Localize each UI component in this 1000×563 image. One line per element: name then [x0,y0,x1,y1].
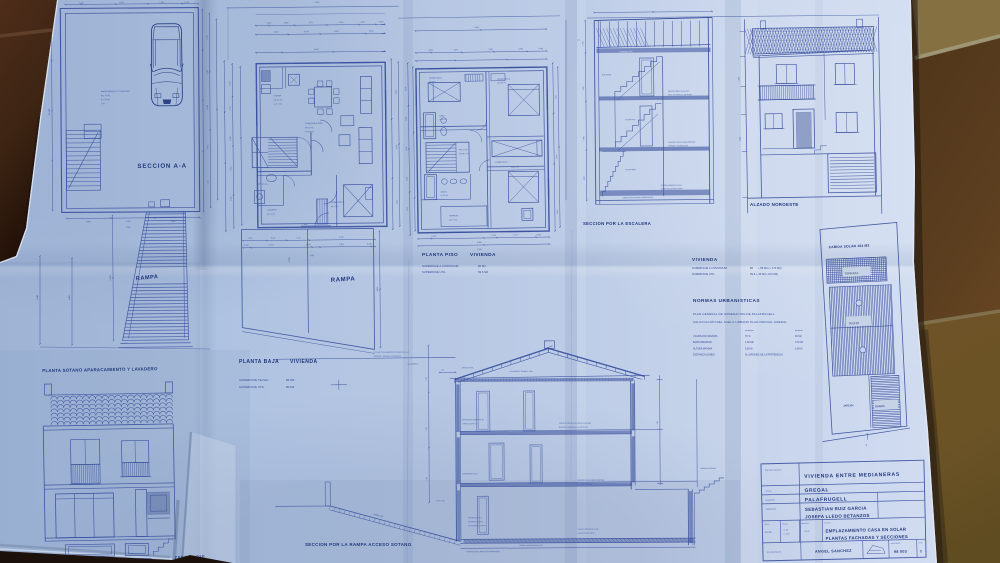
svg-text:sup 12 m2: sup 12 m2 [511,166,519,168]
svg-text:80 M2: 80 M2 [286,385,295,389]
svg-text:2.139: 2.139 [405,87,407,91]
svg-text:SUPERFICIE UTIL: SUPERFICIE UTIL [239,385,265,389]
svg-text:A.S.G.: A.S.G. [804,530,810,533]
svg-text:sup 8.2 m2: sup 8.2 m2 [274,99,283,101]
svg-text:0.449: 0.449 [379,21,384,23]
svg-text:2.663: 2.663 [556,155,558,159]
svg-text:12.428: 12.428 [49,108,51,115]
svg-text:1.714: 1.714 [207,180,209,185]
svg-text:0.927: 0.927 [271,237,276,239]
svg-text:86 M2: 86 M2 [286,378,295,382]
svg-text:PESO 320 KG/M2 SC 200 KG/M2: PESO 320 KG/M2 SC 200 KG/M2 [668,94,692,96]
svg-text:1.648: 1.648 [406,147,408,151]
svg-text:7.005: 7.005 [302,224,307,226]
svg-text:2.283: 2.283 [339,22,344,24]
svg-text:0.962: 0.962 [429,50,434,52]
svg-text:PAS 12 m2: PAS 12 m2 [459,148,468,151]
svg-text:+ 86 M2 (+ 172 M2): + 86 M2 (+ 172 M2) [758,266,782,270]
svg-text:sup 7.5 m2: sup 7.5 m2 [449,219,457,221]
svg-text:VIVIENDA: VIVIENDA [290,359,318,365]
svg-text:7.005: 7.005 [126,227,131,229]
svg-text:0.355: 0.355 [306,244,311,246]
svg-text:TERRAZA: TERRAZA [449,214,459,217]
svg-text:2.70: 2.70 [426,377,428,380]
svg-text:su 7.1 m2: su 7.1 m2 [274,103,282,105]
svg-text:ANGEL SANCHEZ: ANGEL SANCHEZ [815,549,852,554]
svg-text:P.B. 70 M2: P.B. 70 M2 [101,95,110,97]
svg-text:GREGAL: GREGAL [804,487,829,494]
svg-text:VIVIENDA: VIVIENDA [470,252,496,258]
svg-text:6.50 M: 6.50 M [745,347,752,350]
svg-text:1.344: 1.344 [79,2,84,4]
svg-text:3.180: 3.180 [339,237,344,239]
svg-text:4.410: 4.410 [207,145,209,150]
svg-text:5.383: 5.383 [289,257,291,262]
svg-text:2.882: 2.882 [171,221,176,223]
svg-text:2.700: 2.700 [583,86,585,90]
svg-text:1.825: 1.825 [406,177,408,181]
svg-text:0.999: 0.999 [284,22,289,24]
svg-text:3.481: 3.481 [69,295,71,300]
svg-text:DISTR 4.7 m2: DISTR 4.7 m2 [459,153,470,155]
svg-text:0.841: 0.841 [361,22,366,24]
svg-text:98 003: 98 003 [894,550,907,554]
svg-text:3.517: 3.517 [269,244,274,246]
svg-text:PLANTA PISO: PLANTA PISO [422,252,458,258]
svg-text:LAVADERO: LAVADERO [267,208,277,211]
svg-text:sup 10.5 m2: sup 10.5 m2 [497,82,506,84]
svg-text:70 %: 70 % [745,335,751,338]
svg-text:90 M2: 90 M2 [795,335,802,338]
svg-text:PROMOTOR: PROMOTOR [766,509,777,511]
svg-text:FORJADO 25+5: FORJADO 25+5 [619,50,632,53]
svg-text:JARDIN: JARDIN [843,403,854,407]
svg-text:PROYECTO BASICO: PROYECTO BASICO [765,468,782,471]
svg-text:7.05: 7.05 [657,421,659,424]
svg-text:EDIFICABILIDAD: EDIFICABILIDAD [693,341,712,344]
svg-text:SUPERFICIE UTIL: SUPERFICIE UTIL [422,270,446,274]
svg-text:TERRAZA: TERRAZA [845,271,859,276]
svg-text:4.019: 4.019 [314,49,319,51]
svg-text:CALIFICACION DEL SUELO URBA: CALIFICACION DEL SUELO URBANO PLAN PARCI… [693,320,787,324]
svg-text:2.800: 2.800 [739,137,741,141]
svg-text:T 95: T 95 [101,103,105,105]
svg-text:TECHO: TECHO [849,321,860,325]
svg-text:1.069: 1.069 [536,234,541,236]
svg-text:su 20.4 m2: su 20.4 m2 [305,131,314,133]
svg-text:NORMAS URBANISTICAS: NORMAS URBANISTICAS [693,298,760,303]
svg-text:BANO 2: BANO 2 [441,190,448,193]
svg-text:sup 22 m2: sup 22 m2 [305,127,313,129]
svg-text:2.036: 2.036 [119,2,124,4]
svg-text:5.344: 5.344 [37,295,39,300]
svg-text:JU-1998: JU-1998 [764,532,771,534]
svg-text:SUPERFICIE TECHO: SUPERFICIE TECHO [239,378,269,382]
svg-text:2.800: 2.800 [738,77,740,81]
svg-text:2.50: 2.50 [426,477,428,480]
svg-text:5.186: 5.186 [207,70,209,75]
svg-text:3.40R: 3.40R [431,236,437,238]
svg-text:4.843: 4.843 [377,287,379,292]
svg-text:2.535: 2.535 [230,136,232,141]
svg-text:DORMITORIO 4: DORMITORIO 4 [495,162,508,164]
svg-text:2.700: 2.700 [583,136,585,140]
svg-text:sup 8 m2: sup 8 m2 [429,81,436,83]
svg-text:0.150: 0.150 [367,243,372,245]
svg-text:APARCAMIENTO Y TRASTERO: APARCAMIENTO Y TRASTERO [101,90,131,93]
svg-text:DISTANCIA LINDES: DISTANCIA LINDES [693,354,715,357]
svg-text:1.05: 1.05 [441,369,444,371]
svg-text:1.503: 1.503 [513,234,518,236]
svg-text:DORMITORIO 2: DORMITORIO 2 [429,78,442,80]
svg-text:0.100: 0.100 [304,31,309,33]
svg-text:3.483: 3.483 [339,244,344,246]
svg-text:7.000: 7.000 [474,27,479,29]
svg-text:2.100: 2.100 [406,117,408,121]
svg-text:COCINA: COCINA [274,94,282,97]
svg-text:ASEO 2.5 m2: ASEO 2.5 m2 [256,183,267,186]
svg-text:172 M2: 172 M2 [795,341,804,344]
svg-text:1: 1 [920,549,922,553]
svg-text:1.344: 1.344 [184,2,189,4]
svg-text:1.219: 1.219 [491,235,496,237]
svg-text:2.573: 2.573 [454,49,459,51]
svg-text:OCUPACION MAXIMA: OCUPACION MAXIMA [693,335,718,338]
svg-text:2.300: 2.300 [584,176,586,180]
svg-text:86 M2: 86 M2 [478,264,486,268]
svg-text:5.100: 5.100 [207,105,209,110]
svg-text:4.019: 4.019 [334,31,339,33]
svg-text:2.882: 2.882 [86,221,91,223]
svg-text:sup 11 m2: sup 11 m2 [331,206,339,208]
svg-text:6.50 M: 6.50 M [795,347,802,350]
svg-text:sup 4.5 m2: sup 4.5 m2 [267,213,275,215]
svg-text:2.970: 2.970 [582,41,584,45]
svg-text:0.845: 0.845 [519,48,524,50]
svg-text:1.82 M2: 1.82 M2 [745,341,754,344]
svg-text:SUPERFICIE UTIL: SUPERFICIE UTIL [692,272,715,276]
svg-text:MUNICIPIO: MUNICIPIO [766,500,776,502]
svg-text:ALZADO NOROESTE: ALZADO NOROESTE [750,202,799,207]
svg-text:DORMITORIO 1: DORMITORIO 1 [331,202,344,204]
svg-text:0.193: 0.193 [369,30,374,32]
svg-text:1.825: 1.825 [231,196,233,201]
svg-text:7.006: 7.006 [315,2,320,4]
svg-text:SUPERFICIE A CONSTRUIR: SUPERFICIE A CONSTRUIR [692,266,727,270]
svg-text:RAMPA: RAMPA [875,404,885,408]
svg-text:SECCION POR LA RAMPA ACCESO SO: SECCION POR LA RAMPA ACCESO SOTANO [305,542,412,547]
svg-text:normativa: normativa [745,329,755,332]
svg-text:TITULO: TITULO [766,491,773,493]
svg-text:4.618: 4.618 [557,210,559,214]
svg-text:6.168: 6.168 [396,145,398,150]
svg-text:2.117: 2.117 [555,95,557,99]
svg-text:EXPEDIENTE: EXPEDIENTE [891,543,901,545]
svg-text:SECCION POR LA ESCALERA: SECCION POR LA ESCALERA [583,221,651,226]
svg-text:69.6 + 34 M2 ( 104 M2): 69.6 + 34 M2 ( 104 M2) [750,272,778,276]
svg-text:2.70: 2.70 [426,427,428,430]
svg-text:3.429: 3.429 [395,90,397,95]
svg-text:0.449: 0.449 [539,48,544,50]
svg-text:2.581: 2.581 [274,31,279,33]
svg-text:P.T. 25 M2: P.T. 25 M2 [101,99,110,101]
svg-text:86: 86 [750,266,753,270]
svg-text:SECCION A-A: SECCION A-A [137,163,187,170]
svg-text:SUPERFICIE A CONSTRUIR: SUPERFICIE A CONSTRUIR [422,264,459,268]
svg-text:6.983: 6.983 [477,242,482,244]
svg-text:1 : 50: 1 : 50 [783,529,788,531]
svg-text:0.300: 0.300 [206,35,208,40]
svg-text:1.081: 1.081 [248,238,253,240]
svg-text:7.156: 7.156 [159,2,164,4]
svg-text:PLAN GENERAL DE ORDENACION DE: PLAN GENERAL DE ORDENACION DE PALAFRUGEL… [693,312,775,316]
svg-text:su 5.2 m2: su 5.2 m2 [441,195,448,197]
svg-text:1.212: 1.212 [296,237,301,239]
svg-text:6.402: 6.402 [126,221,131,223]
svg-text:0.204: 0.204 [229,81,231,86]
svg-text:1.714: 1.714 [230,106,232,111]
svg-text:0.162: 0.162 [267,23,272,25]
svg-text:SR. ARQUITECTO: SR. ARQUITECTO [767,550,782,553]
svg-text:1 : 100: 1 : 100 [784,533,790,535]
svg-text:2.283: 2.283 [489,49,494,51]
svg-text:DORMITORIO 3: DORMITORIO 3 [497,79,510,81]
svg-text:PLANTA BAJA: PLANTA BAJA [239,359,279,365]
svg-text:0.300: 0.300 [230,166,232,171]
svg-text:0.230: 0.230 [244,245,249,247]
svg-text:VIVIENDA: VIVIENDA [692,257,718,262]
svg-text:2.573: 2.573 [309,22,314,24]
svg-text:1.275: 1.275 [407,207,409,211]
svg-text:proyecto: proyecto [795,329,804,332]
svg-text:69.6 M2: 69.6 M2 [478,270,489,274]
svg-text:COMEDOR-ESTAR: COMEDOR-ESTAR [305,122,323,125]
svg-text:BANO: BANO [440,114,446,117]
svg-text:AL GIRONES DE LA PERTENECIA: AL GIRONES DE LA PERTENECIA [745,354,783,357]
svg-text:PALAFRUGELL: PALAFRUGELL [805,496,848,503]
svg-text:7.000: 7.000 [477,249,482,251]
svg-text:2.663: 2.663 [397,200,399,205]
svg-text:su 4.7 m2: su 4.7 m2 [440,119,447,121]
svg-text:ALTURA MAXIMA: ALTURA MAXIMA [693,347,713,350]
